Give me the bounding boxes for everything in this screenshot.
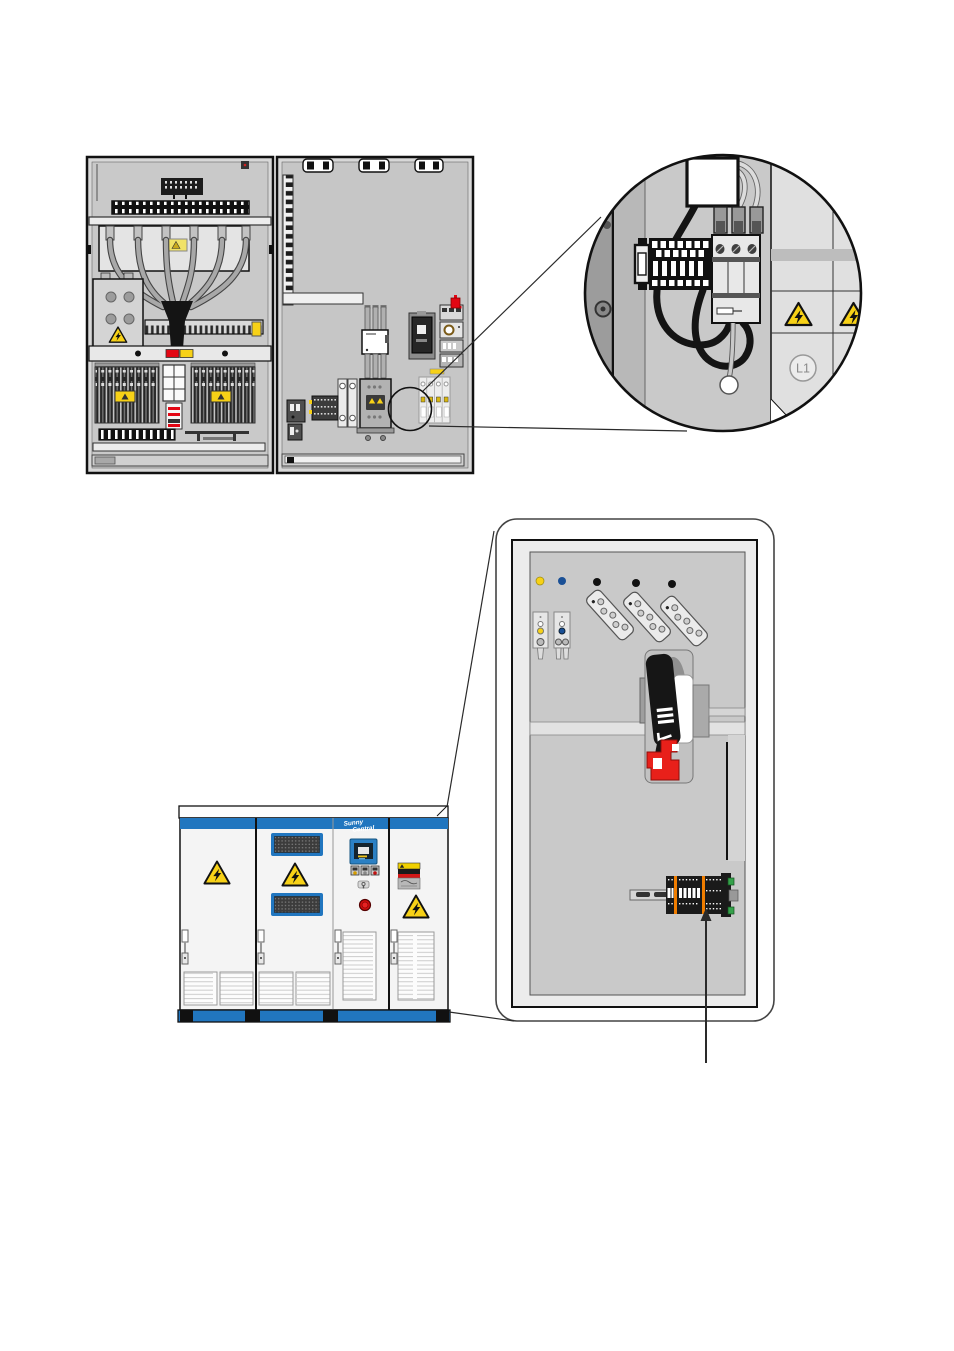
callout-line-panel-lower (449, 1012, 514, 1021)
manual-page: L1 (0, 0, 954, 1351)
callout-line-upper (423, 217, 601, 391)
arrow-up-icon (701, 908, 712, 1063)
callout-line-lower (429, 426, 687, 431)
callout-line-panel-upper (447, 531, 494, 807)
callout-overlay (0, 0, 954, 1351)
